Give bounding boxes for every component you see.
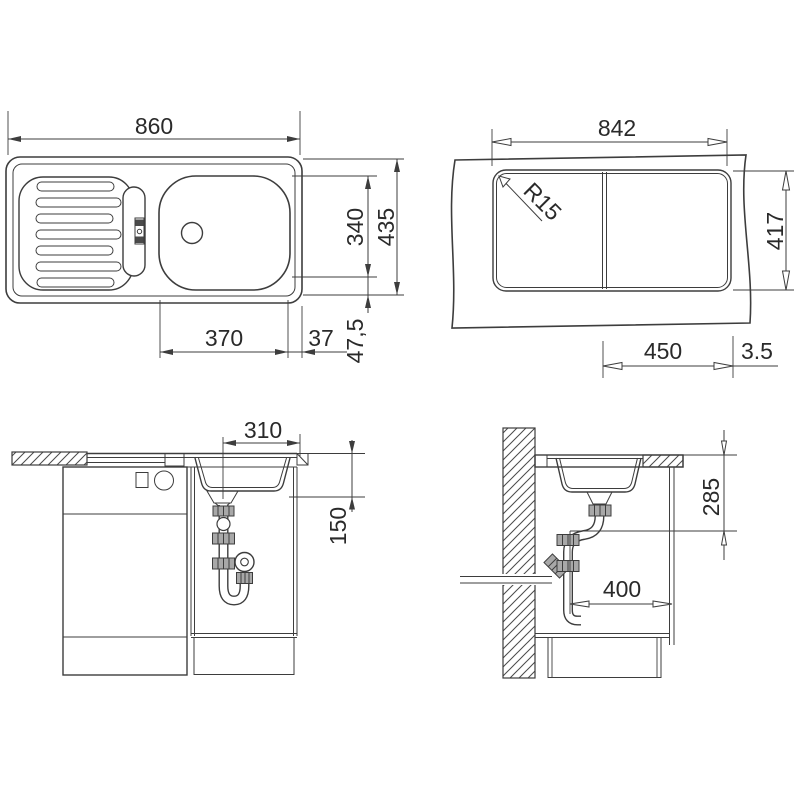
- drain-flange-side: [587, 492, 612, 504]
- dim-400: 400: [570, 531, 672, 614]
- plinth-side: [548, 638, 661, 678]
- dim-label-340: 340: [342, 208, 368, 246]
- pipe-nut-2: [213, 558, 235, 569]
- dim-label-370: 370: [205, 325, 243, 351]
- dim-label-400: 400: [603, 576, 641, 602]
- dim-370-37: 370 37: [160, 300, 347, 358]
- dim-860: 860: [8, 111, 300, 155]
- outlet-nut: [237, 573, 253, 584]
- siphon-trap: [213, 505, 255, 601]
- dim-label-417: 417: [762, 212, 788, 250]
- plinth: [194, 638, 294, 675]
- dim-label-150: 150: [325, 507, 351, 545]
- dim-label-310: 310: [244, 417, 282, 443]
- flange-nut-side: [589, 505, 611, 516]
- appliance-circle-symbol: [155, 471, 174, 490]
- left-cabinet: [63, 467, 187, 675]
- dim-label-450: 450: [644, 338, 682, 364]
- dim-label-3-5: 3.5: [741, 338, 773, 364]
- dim-label-47-5: 47,5: [342, 319, 368, 364]
- flange-nut: [213, 506, 234, 516]
- dim-450-3-5: 450 3.5: [603, 336, 778, 378]
- worktop-hatch-left: [12, 452, 87, 465]
- dim-285: 285: [570, 430, 737, 560]
- dim-label-37: 37: [308, 325, 334, 351]
- bowl-outline: [159, 176, 290, 290]
- side-view: 285 400: [460, 428, 737, 678]
- technical-drawing-page: 860 340 435 47,5 370: [0, 0, 800, 800]
- tap-hole-fitting: [135, 218, 144, 244]
- pipe-nut-side-2: [557, 561, 579, 572]
- cutout-view: R15 842 417 450 3.5: [452, 115, 794, 378]
- tap-ledge: [165, 454, 184, 467]
- drain-hole: [182, 223, 203, 244]
- bowl-side-section: [556, 458, 641, 509]
- top-view: 860 340 435 47,5 370: [6, 111, 404, 363]
- sink-installation-diagram: 860 340 435 47,5 370: [0, 0, 800, 800]
- worktop-hatch-right: [643, 455, 683, 467]
- dim-label-860: 860: [135, 113, 173, 139]
- pipe-nut-side-1: [557, 535, 579, 546]
- dim-label-435: 435: [373, 208, 399, 246]
- dim-label-842: 842: [598, 115, 636, 141]
- front-view: 310 150: [12, 417, 365, 675]
- pipe-nut-1: [213, 533, 235, 544]
- rim-end-cap: [297, 454, 308, 466]
- drain-flange: [207, 491, 238, 503]
- bowl-section: [195, 458, 290, 509]
- ball-joint: [217, 518, 230, 531]
- dim-label-285: 285: [698, 478, 724, 516]
- appliance-square-symbol: [136, 473, 148, 488]
- wall-section: [503, 428, 535, 678]
